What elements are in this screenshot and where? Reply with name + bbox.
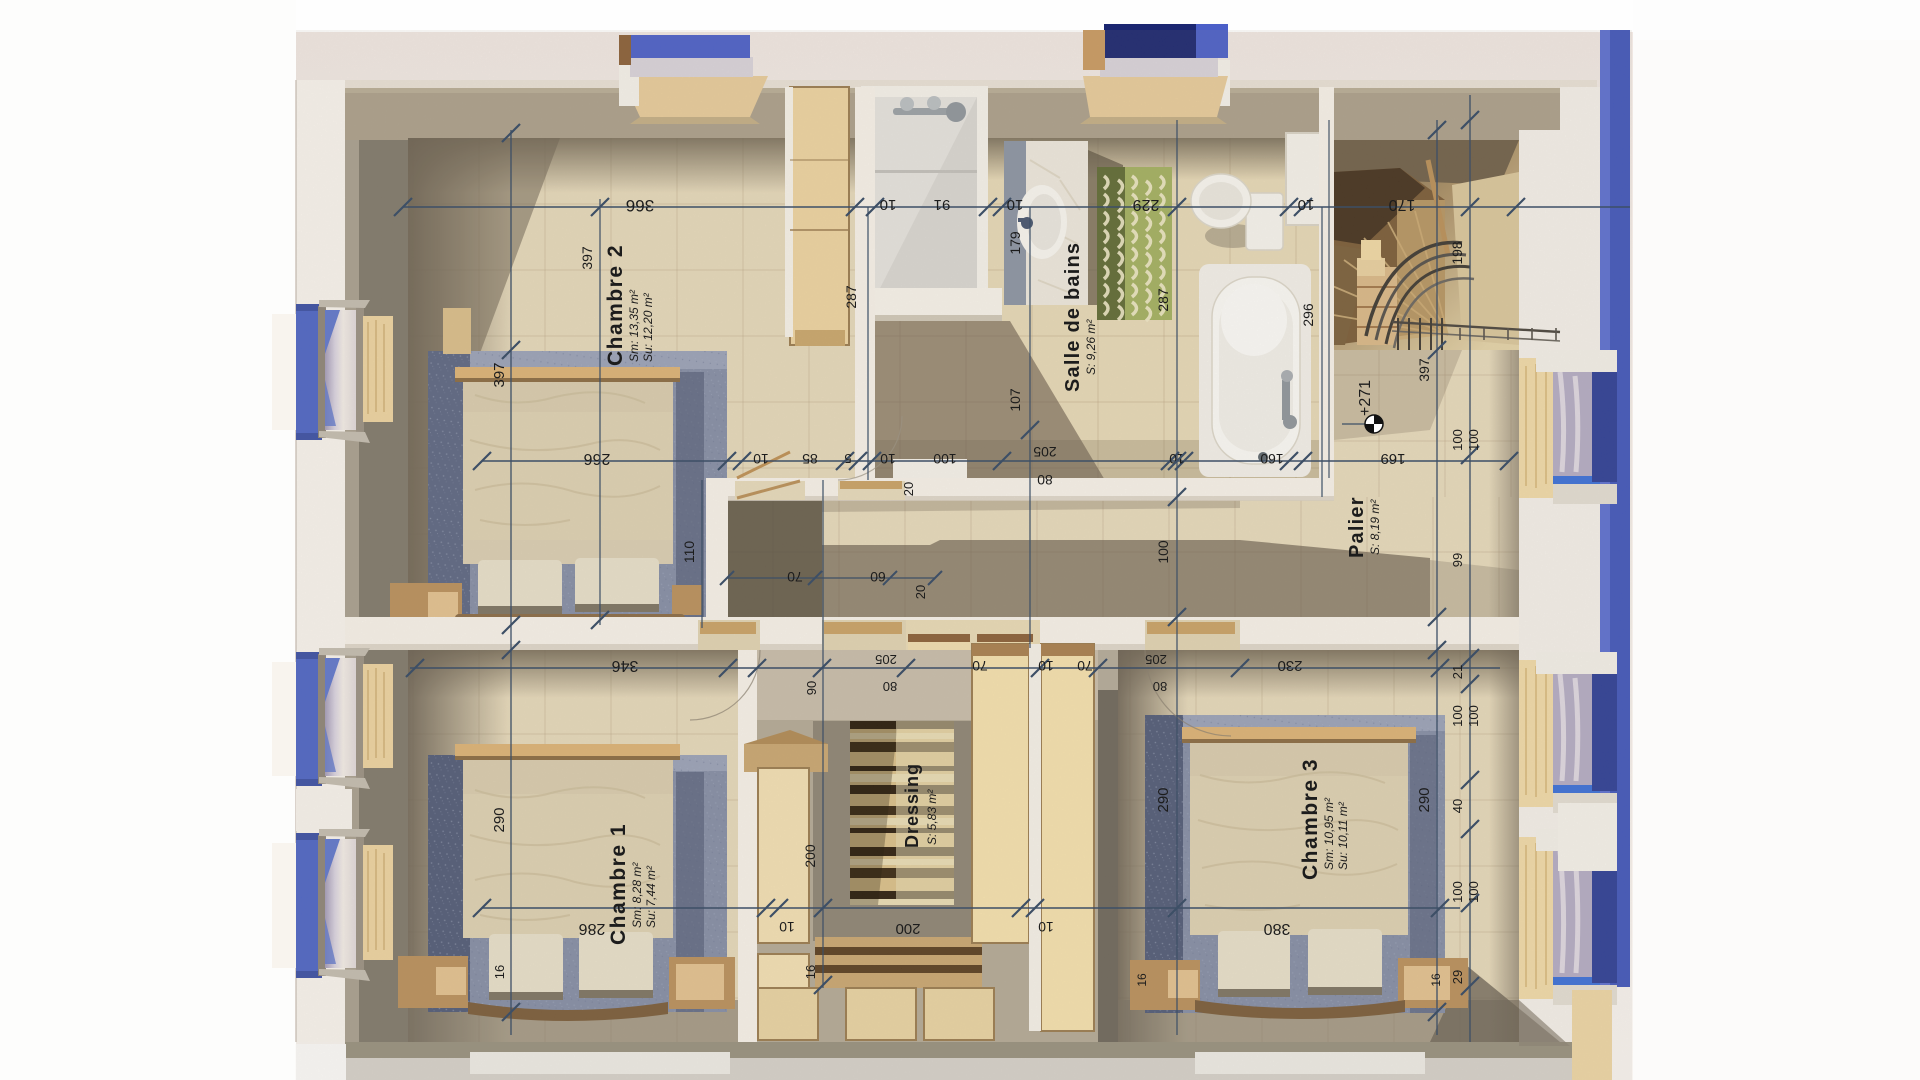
svg-text:S: 5,83 m²: S: 5,83 m² (925, 789, 939, 845)
svg-text:107: 107 (1007, 388, 1023, 412)
svg-text:Sm: 10,95 m²: Sm: 10,95 m² (1322, 797, 1336, 870)
svg-text:16: 16 (803, 965, 818, 979)
svg-text:80: 80 (1037, 472, 1053, 488)
svg-text:+271: +271 (1357, 380, 1374, 416)
svg-text:397: 397 (1416, 358, 1432, 382)
svg-text:91: 91 (934, 196, 951, 213)
svg-text:16: 16 (492, 965, 507, 979)
svg-text:Sm: 13,35 m²: Sm: 13,35 m² (627, 289, 641, 362)
svg-text:Su: 12,20 m²: Su: 12,20 m² (641, 292, 655, 362)
svg-text:S: 9,26 m²: S: 9,26 m² (1084, 319, 1098, 375)
svg-text:20: 20 (901, 482, 916, 496)
svg-text:10: 10 (1007, 196, 1024, 213)
svg-text:10: 10 (779, 919, 795, 935)
svg-text:100: 100 (1450, 881, 1465, 903)
svg-text:286: 286 (579, 920, 606, 937)
svg-text:Salle de bains: Salle de bains (1062, 242, 1084, 392)
svg-text:266: 266 (584, 450, 611, 467)
svg-text:100: 100 (1450, 705, 1465, 727)
svg-text:290: 290 (1155, 787, 1172, 812)
svg-text:346: 346 (612, 657, 639, 674)
svg-text:100: 100 (1450, 429, 1465, 451)
svg-text:100: 100 (1155, 540, 1171, 564)
svg-text:100: 100 (1466, 705, 1481, 727)
svg-text:Chambre 1: Chambre 1 (607, 823, 630, 945)
svg-text:380: 380 (1264, 920, 1291, 937)
svg-text:80: 80 (1153, 679, 1167, 694)
svg-text:10: 10 (880, 451, 896, 467)
svg-text:Chambre 3: Chambre 3 (1299, 758, 1322, 880)
svg-text:205: 205 (1033, 444, 1057, 460)
svg-text:366: 366 (626, 196, 654, 215)
svg-text:230: 230 (1277, 657, 1302, 674)
svg-text:90: 90 (804, 681, 819, 695)
svg-text:10: 10 (880, 196, 897, 213)
svg-text:287: 287 (1155, 288, 1171, 312)
svg-text:80: 80 (883, 679, 897, 694)
svg-text:5: 5 (844, 451, 851, 466)
svg-text:100: 100 (1466, 429, 1481, 451)
svg-text:397: 397 (579, 246, 595, 270)
svg-text:29: 29 (1450, 970, 1465, 984)
svg-text:296: 296 (1300, 303, 1316, 327)
svg-text:70: 70 (972, 658, 988, 674)
svg-text:179: 179 (1007, 231, 1023, 255)
svg-text:290: 290 (1416, 787, 1433, 812)
svg-text:70: 70 (1077, 658, 1093, 674)
svg-text:229: 229 (1133, 196, 1160, 213)
svg-text:Chambre 2: Chambre 2 (604, 244, 627, 366)
svg-text:200: 200 (802, 844, 818, 868)
svg-text:160: 160 (1260, 451, 1284, 467)
svg-text:Su: 10,11 m²: Su: 10,11 m² (1336, 801, 1350, 870)
svg-text:21: 21 (1450, 665, 1465, 679)
svg-text:100: 100 (933, 451, 957, 467)
svg-text:Su: 7,44 m²: Su: 7,44 m² (644, 865, 658, 928)
svg-text:20: 20 (913, 585, 928, 599)
svg-text:169: 169 (1380, 450, 1405, 467)
svg-text:40: 40 (1450, 799, 1465, 813)
svg-text:287: 287 (843, 285, 859, 309)
svg-text:Dressing: Dressing (902, 763, 922, 848)
svg-text:100: 100 (1466, 881, 1481, 903)
svg-text:Palier: Palier (1346, 496, 1368, 558)
svg-text:170: 170 (1389, 196, 1416, 213)
svg-text:205: 205 (1145, 652, 1167, 667)
svg-text:70: 70 (787, 569, 803, 585)
svg-text:16: 16 (1429, 973, 1443, 987)
svg-text:60: 60 (870, 569, 886, 585)
svg-text:205: 205 (875, 652, 897, 667)
svg-text:198: 198 (1449, 241, 1465, 265)
svg-text:397: 397 (491, 362, 508, 387)
svg-text:290: 290 (491, 807, 508, 832)
svg-text:10: 10 (1038, 919, 1054, 935)
svg-text:10: 10 (1038, 658, 1054, 674)
svg-text:Sm: 8,28 m²: Sm: 8,28 m² (630, 862, 644, 928)
svg-text:200: 200 (895, 920, 920, 937)
svg-text:110: 110 (681, 541, 697, 564)
svg-text:10: 10 (753, 451, 769, 467)
svg-text:99: 99 (1450, 553, 1465, 567)
svg-text:85: 85 (802, 451, 818, 467)
svg-text:16: 16 (1135, 973, 1149, 987)
svg-text:S: 8,19 m²: S: 8,19 m² (1368, 499, 1382, 555)
svg-text:10: 10 (1298, 196, 1315, 213)
